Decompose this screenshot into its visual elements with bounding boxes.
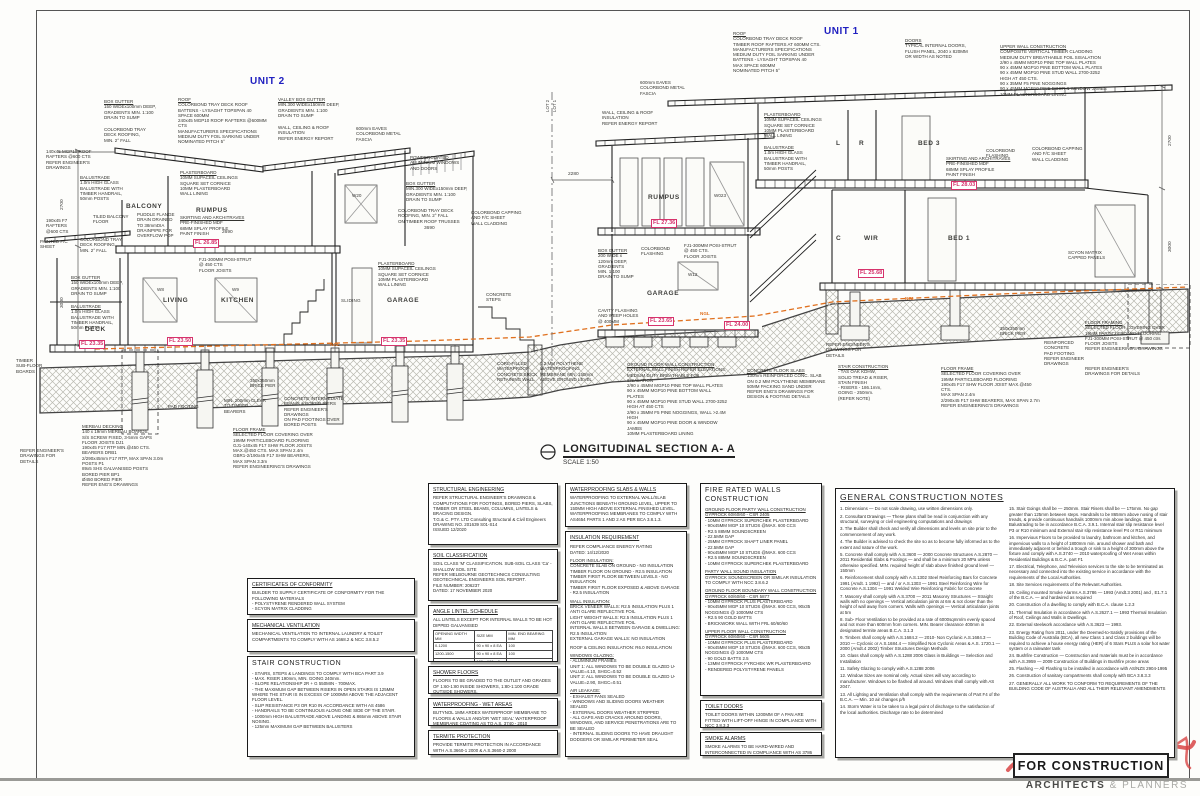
annotation: FJ1-300MM POSI-STRUT @ 450 CTS FLOOR JOI… [199, 257, 261, 273]
unit-label: UNIT 1 [824, 26, 859, 37]
firm-name: ARCHITECTS & PLANNERS [1020, 780, 1188, 791]
floor-level-label: FL 23.35 [79, 340, 105, 349]
annotation: CONCRETE INTERMEDIATE BEAMS & BORED PIER… [284, 396, 352, 428]
annotation: REFER ENGINEER'S DRAWINGS FOR DETAILS [20, 448, 72, 464]
annotation: WALL, CEILING & ROOF INSULATION REFER EN… [602, 110, 664, 126]
room-label: RUMPUS [648, 194, 680, 201]
floor-level-label: FL 26.85 [193, 239, 219, 248]
section-title-block: LONGITUDINAL SECTION A- A SCALE 1:50 [540, 443, 735, 466]
room-label: BED 1 [948, 235, 970, 242]
annotation: FLOOR FRAMESELECTED FLOOR COVERING OVER … [941, 366, 1041, 408]
annotation: PAINTED F/C SHEET [40, 239, 78, 250]
floor-level-label: FL 28.03 [951, 181, 977, 190]
annotation: CONCRETE FLOOR SLABS130mm REINFORCED CON… [747, 368, 829, 400]
window-label: W8 [157, 287, 164, 292]
annotation: COLORBOND FLASHING [641, 246, 683, 257]
annotation: VALLEY BOX GUTTERMIN.300 WIDEx150mm DEEP… [278, 97, 348, 118]
dimension-label: 2700 [1168, 135, 1173, 146]
annotation: BOX GUTTERMIN.300 WIDEx150mm DEEP, GRADI… [406, 181, 470, 202]
annotation: FLOOR FRAMINGSELECTED FLOOR COVERING OVE… [1085, 320, 1169, 352]
dimension-label: 3000 [60, 297, 65, 308]
annotation: 350x350mm BRICK PIER [250, 378, 292, 389]
annotation: DOORSTYPICAL INTERNAL DOORS, FLUSH PANEL… [905, 38, 977, 59]
annotation: 350x350mm BRICK PIER [1000, 326, 1042, 337]
general-construction-notes-title: GENERAL CONSTRUCTION NOTES [840, 492, 1170, 502]
room-label: BALCONY [126, 203, 162, 210]
structural-engineering-title: STRUCTURAL ENGINEERING [433, 487, 553, 493]
annotation: WALL, CEILING & ROOF INSULATION REFER EN… [278, 125, 340, 141]
waterproofing-wet-areas: WATERPROOFING - WET AREASBUTYNOL 1MM ARD… [428, 698, 558, 726]
firm-name-bold: ARCHITECTS [1026, 780, 1105, 791]
unit-label: UNIT 2 [250, 76, 285, 87]
annotation: BALUSTRADE1.0m HIGH GLASS BALUSTRADE WIT… [71, 304, 126, 330]
annotation: FLOOR FRAMESELECTED FLOOR COVERING OVER … [233, 427, 325, 469]
annotation: SCYON MATRIX CAPPED PANELS [1068, 250, 1120, 261]
annotation: PLASTERBOARD10MM SUPACEIL CEILINGS SQUAR… [378, 261, 442, 287]
soil-classification: SOIL CLASSIFICATIONSOIL CLASS 'M' CLASSI… [428, 549, 558, 601]
floor-level-label: FL 23.65 [648, 317, 674, 326]
annotation: SKIRTING AND ARCHITRAVESPRE-FINISHED MDF… [946, 156, 1020, 177]
structural-engineering: STRUCTURAL ENGINEERINGREFER STRUCTURAL E… [428, 483, 558, 545]
annotation: 140x45 MGP10 ROOF RAFTERS @600 CTS REFER… [46, 149, 100, 170]
annotation: COLORBOND TRAY DECK ROOFING, MIN. 2° FAL… [398, 208, 460, 224]
window-label: W9 [232, 287, 239, 292]
section-scale: SCALE 1:50 [563, 459, 735, 466]
architectural-section-sheet: UNIT 2UNIT 1BALCONYRUMPUSDECKLIVINGKITCH… [0, 0, 1200, 796]
lot-label: LOT 1 [552, 100, 557, 112]
annotation: SKIRTING AND ARCHITRAVESPRE-FINISHED MDF… [180, 215, 254, 236]
annotation: GROUND FLOOR WALL CONSTRUCTIONEXTERNAL W… [627, 362, 727, 436]
annotation: 0.2 MM POLYTHENE WATERPROOFING MEMBRANE … [540, 361, 602, 382]
fire-rated-walls: FIRE RATED WALLS CONSTRUCTIONGROUND FLOO… [700, 483, 822, 696]
mechanical-ventilation-title: MECHANICAL VENTILATION [252, 623, 410, 629]
certificates-of-conformity-title: CERTIFICATES OF CONFORMITY [252, 582, 410, 588]
smoke-alarms: SMOKE ALARMSSMOKE ALARMS TO BE HARD-WIRE… [700, 732, 822, 756]
annotation: CONCRETE STEPS [486, 292, 526, 303]
annotation: 190x45 F7 RAFTERS @600 CTS [46, 218, 86, 234]
mechanical-ventilation: MECHANICAL VENTILATIONMECHANICAL VENTILA… [247, 619, 415, 652]
annotation: COLORBOND CAPPING AND F/C SHEET WALL CLA… [1032, 146, 1086, 162]
certificates-of-conformity: CERTIFICATES OF CONFORMITYBUILDER TO SUP… [247, 578, 415, 615]
annotation: BALUSTRADE1.0m HIGH GLASS BALUSTRADE WIT… [80, 175, 135, 201]
room-label: LIVING [163, 297, 188, 304]
floor-level-label: FL 25.68 [858, 269, 884, 278]
waterproofing-slabs-walls: WATERPROOFING SLABS & WALLSWATERPROOFING… [565, 483, 687, 527]
angle-lintel-schedule: ANGLE LINTEL SCHEDULEALL LINTELS EXCEPT … [428, 605, 558, 662]
termite-protection-title: TERMITE PROTECTION [433, 734, 553, 740]
room-label: BED 3 [918, 140, 940, 147]
room-label: RUMPUS [196, 207, 228, 214]
floor-level-label: FL 23.50 [167, 337, 193, 346]
lot-label: LOT 2 [545, 100, 550, 112]
annotation: 600mm EAVES COLORBOND METAL FASCIA [356, 126, 408, 142]
waterproofing-wet-areas-title: WATERPROOFING - WET AREAS [433, 702, 553, 708]
room-label: R [859, 140, 864, 147]
dimension-label: 3000 [1168, 241, 1173, 252]
room-label: L [836, 140, 841, 147]
room-label: SLIDING [341, 298, 361, 303]
annotation: CAVITY FLASHING AND WEEP HOLES @ 400MM [598, 308, 648, 324]
annotation: POWDERCOATED ALUMINIUM WINDOWS AND DOORS [410, 155, 472, 171]
annotation: REFER ENGINEER'S DRAWINGS FOR DETAILS [1085, 366, 1141, 377]
annotation: UPPER WALL CONSTRUCTIONCOMPOSITE VERTICA… [1000, 44, 1110, 97]
window-label: W20 [352, 193, 361, 198]
annotation: COLORBOND FLASHING [986, 148, 1028, 159]
annotation: COLORBOND CAPPING AND F/C SHEET WALL CLA… [471, 210, 523, 226]
annotation: BOX GUTTER150 WIDEx100mm DEEP, GRADIENTS… [71, 275, 127, 296]
annotation: MERBAU DECKING140 x 19mm MERBAU BOARDS, … [82, 424, 174, 488]
room-label: GARAGE [647, 290, 679, 297]
annotation: PLASTERBOARD10MM SUPACEIL CEILINGS SQUAR… [764, 112, 828, 138]
stair-construction-notes: STAIR CONSTRUCTION- STAIRS, STEPS & LAND… [247, 656, 415, 757]
annotation: TIMBER SUB-FLOOR BOARDS [16, 358, 56, 374]
termite-protection: TERMITE PROTECTIONPROVIDE TERMITE PROTEC… [428, 730, 558, 755]
annotation: COLORBOND TRAY DECK ROOFING, MIN. 2° FAL… [80, 237, 130, 253]
ngl-label: NGL [905, 296, 915, 301]
soil-classification-title: SOIL CLASSIFICATION [433, 553, 553, 559]
floor-level-label: FL 23.35 [381, 337, 407, 346]
toilet-doors-title: TOILET DOORS [705, 704, 817, 710]
annotation: MIN. 200mm CLEAR TO TIMBER BEARERS [224, 398, 270, 414]
shower-floors-title: SHOWER FLOORS [433, 670, 553, 676]
dimension-label: 2280 [568, 172, 579, 177]
section-title: LONGITUDINAL SECTION A- A [563, 443, 735, 458]
ngl-label: NGL [330, 342, 340, 347]
annotation: COLORBOND TRAY DECK ROOFING, MIN. 2° FAL… [104, 127, 159, 143]
firm-name-light: & PLANNERS [1105, 780, 1188, 791]
toilet-doors: TOILET DOORSTOILET DOORS WITHIN 1200MM O… [700, 700, 822, 728]
stair-construction-notes-title: STAIR CONSTRUCTION [252, 660, 410, 669]
annotation: STAIR CONSTRUCTION- TAS OAK KDHW, SOLID … [838, 364, 912, 401]
angle-lintel-schedule-title: ANGLE LINTEL SCHEDULE [433, 609, 553, 615]
annotation: 600mm EAVES COLORBOND METAL FASCIA [640, 80, 692, 96]
room-label: KITCHEN [221, 297, 254, 304]
waterproofing-slabs-walls-title: WATERPROOFING SLABS & WALLS [570, 487, 682, 493]
annotation: PAD FOOTING [168, 404, 212, 409]
smoke-alarms-title: SMOKE ALARMS [705, 736, 817, 742]
insulation-requirement-title: INSULATION REQUIREMENT [570, 535, 682, 541]
annotation: BOX GUTTER150 WIDEx100mm DEEP, GRADIENTS… [104, 99, 166, 120]
fire-rated-walls-title: FIRE RATED WALLS CONSTRUCTION [705, 487, 817, 504]
annotation: REFER ENGINEER'S DRAWINGS FOR DETAILS [826, 342, 878, 358]
shower-floors: SHOWER FLOORSFLOORS TO BE GRADED TO THE … [428, 666, 558, 694]
room-label: WIR [864, 235, 878, 242]
annotation: FJ1-300MM POSI-STRUT @ 450 CTS. FLOOR JO… [684, 243, 746, 259]
dimension-label: 3690 [424, 226, 435, 231]
annotation: TILED BALCONY FLOOR [93, 214, 137, 225]
annotation: PLASTERBOARD10MM SUPACEIL CEILINGS SQUAR… [180, 170, 244, 196]
annotation: BOX GUTTER200 WIDE x 120mm DEEP, GRADIEN… [598, 248, 640, 280]
insulation-requirement: INSULATION REQUIREMENTREFER COMPLIANCE E… [565, 531, 687, 757]
annotation: BALUSTRADE1.0m HIGH GLASS BALUSTRADE WIT… [764, 145, 819, 171]
window-label: W12 [688, 272, 697, 277]
room-label: C [836, 235, 841, 242]
for-construction-stamp: FOR CONSTRUCTION [1013, 753, 1169, 778]
floor-level-label: FL 24.00 [724, 321, 750, 330]
room-label: GARAGE [387, 297, 419, 304]
floor-level-label: FL 27.36 [651, 219, 677, 228]
annotation: ROOFCOLORBOND TRAY DECK ROOF BATTENS - L… [178, 97, 276, 145]
annotation: ROOFCOLORBOND TRAY DECK ROOF TIMBER ROOF… [733, 31, 828, 73]
general-construction-notes: GENERAL CONSTRUCTION NOTES1. Dimensions … [835, 488, 1175, 758]
dimension-label: 2700 [60, 199, 65, 210]
ngl-label: NGL [700, 311, 710, 316]
annotation: PUDDLE FLANGE DRAIN DRAINED TO 38mmDIA D… [137, 212, 185, 238]
window-label: W023 [714, 193, 726, 198]
